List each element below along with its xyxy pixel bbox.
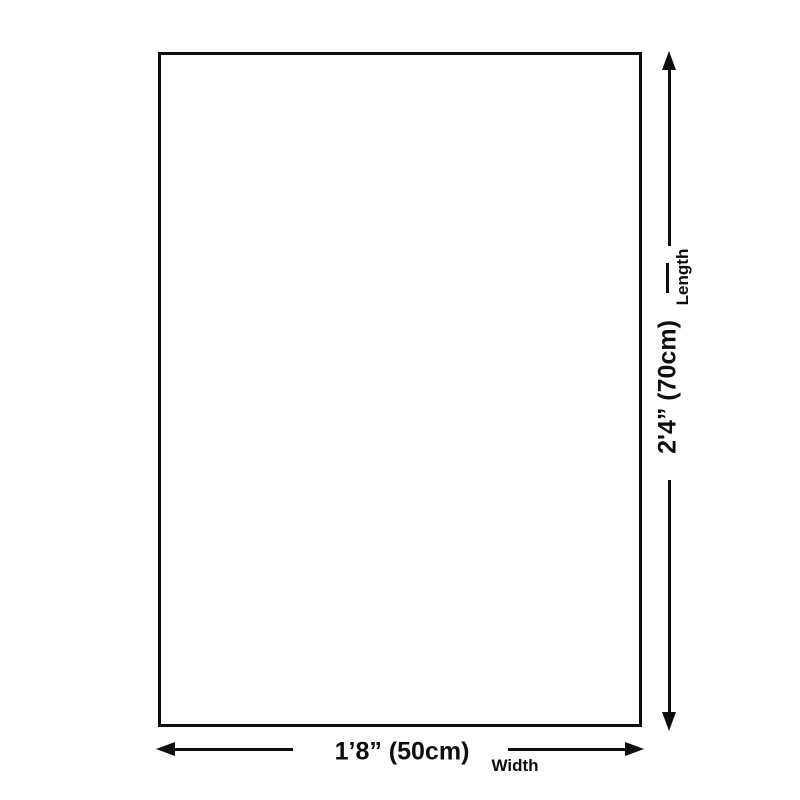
product-outline (158, 52, 642, 727)
length-label-tick (666, 263, 669, 293)
length-value: 2'4” (70cm) (654, 320, 683, 454)
length-label: Length (673, 249, 693, 306)
arrow-right-icon (625, 742, 644, 756)
width-arrow-line-right (508, 748, 628, 751)
arrow-down-icon (662, 712, 676, 731)
dimension-diagram: 2'4” (70cm) Length 1’8” (50cm) Width (0, 0, 800, 800)
width-arrow-line-left (173, 748, 293, 751)
width-value: 1’8” (50cm) (335, 738, 470, 767)
width-label: Width (491, 756, 538, 776)
length-arrow-line-upper (668, 67, 671, 246)
length-arrow-line-lower (668, 480, 671, 714)
